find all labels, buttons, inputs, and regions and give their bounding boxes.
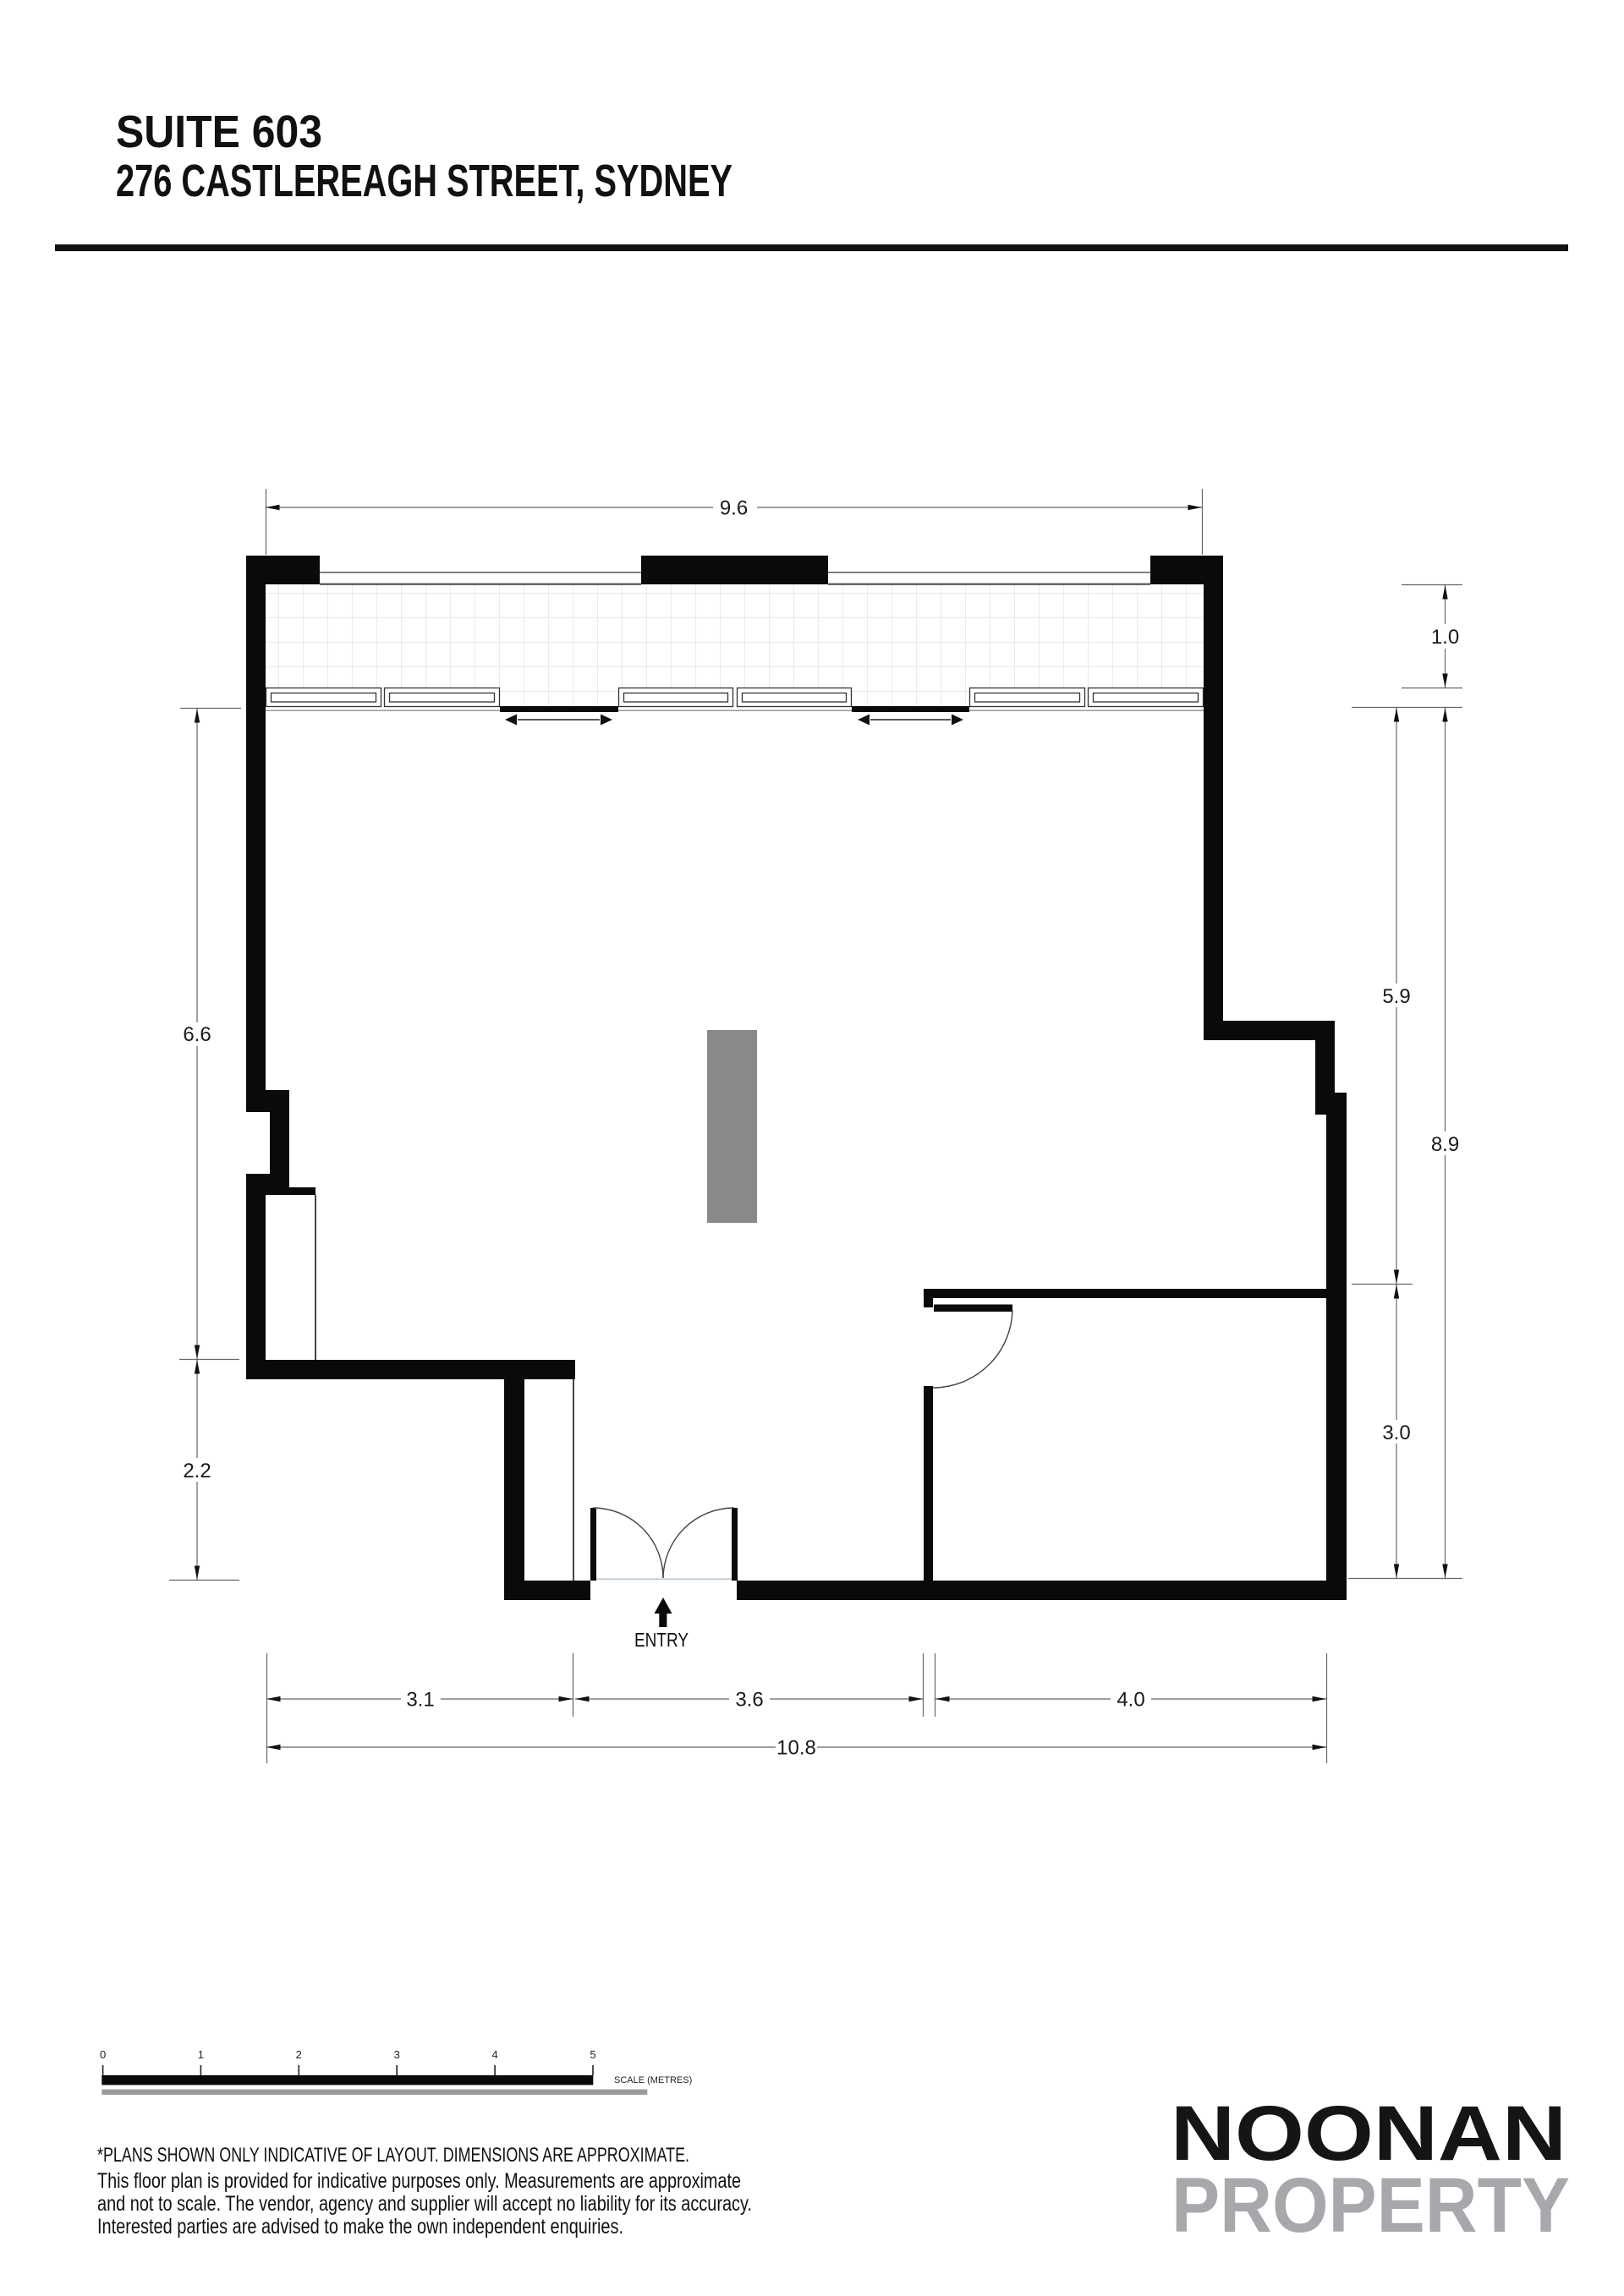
svg-text:0: 0 [100, 2048, 106, 2061]
svg-text:3: 3 [394, 2048, 400, 2061]
svg-text:and not to scale. The vendor,: and not to scale. The vendor, agency and… [97, 2192, 752, 2216]
svg-text:3.1: 3.1 [406, 1689, 434, 1712]
svg-text:5: 5 [590, 2048, 595, 2061]
svg-text:ENTRY: ENTRY [634, 1629, 689, 1651]
svg-text:6.6: 6.6 [183, 1023, 211, 1046]
svg-text:8.9: 8.9 [1431, 1133, 1459, 1156]
svg-text:3.6: 3.6 [735, 1689, 763, 1712]
svg-text:276 CASTLEREAGH STREET, SYDNEY: 276 CASTLEREAGH STREET, SYDNEY [116, 156, 732, 206]
svg-text:*PLANS SHOWN ONLY INDICATIVE O: *PLANS SHOWN ONLY INDICATIVE OF LAYOUT. … [97, 2144, 689, 2167]
svg-text:9.6: 9.6 [720, 497, 748, 520]
svg-text:4: 4 [491, 2048, 497, 2061]
svg-text:5.9: 5.9 [1382, 985, 1410, 1008]
svg-text:PROPERTY: PROPERTY [1171, 2162, 1570, 2249]
svg-text:Interested parties are advised: Interested parties are advised to make t… [97, 2215, 623, 2238]
svg-text:4.0: 4.0 [1116, 1689, 1144, 1712]
svg-text:1.0: 1.0 [1431, 626, 1459, 649]
svg-text:3.0: 3.0 [1382, 1422, 1410, 1444]
svg-text:This floor plan is provided fo: This floor plan is provided for indicati… [97, 2169, 741, 2193]
svg-text:SCALE (METRES): SCALE (METRES) [614, 2075, 692, 2085]
svg-text:2: 2 [296, 2048, 302, 2061]
svg-text:SUITE 603: SUITE 603 [116, 107, 322, 157]
svg-text:1: 1 [198, 2048, 204, 2061]
svg-text:10.8: 10.8 [776, 1737, 816, 1760]
svg-text:2.2: 2.2 [183, 1460, 211, 1482]
